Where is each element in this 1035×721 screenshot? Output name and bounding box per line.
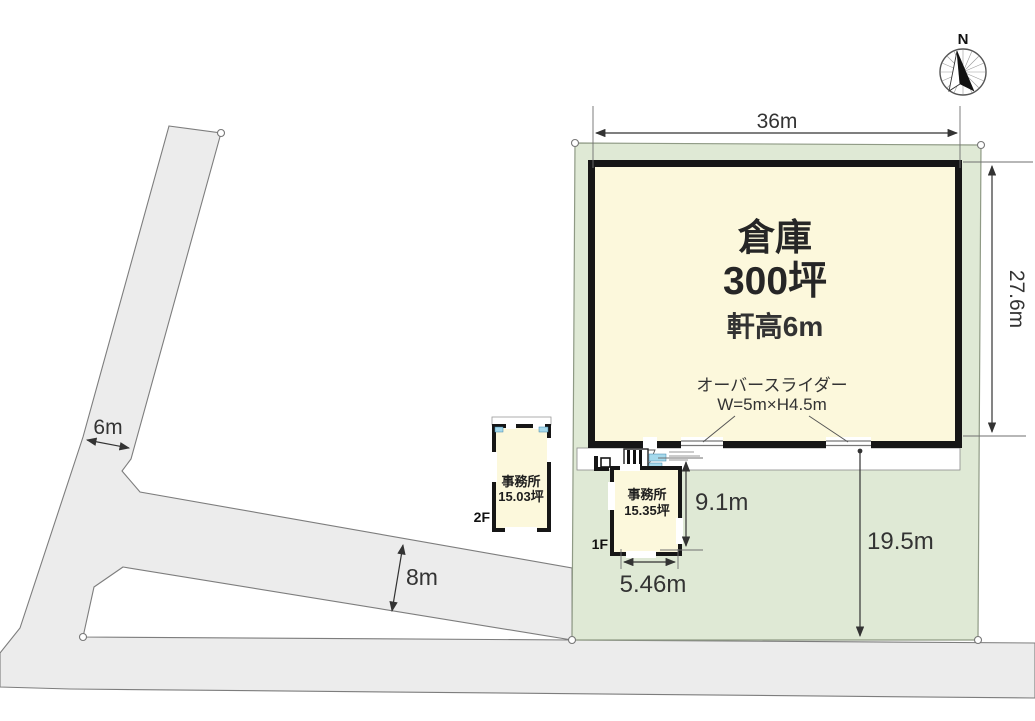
window-gap [490,452,497,482]
dock-box-icon [601,458,610,467]
dim-label-36m: 36m [757,110,798,133]
window-mark [539,427,548,432]
dim-label-27-6m: 27.6m [1005,270,1028,328]
slider-door-gap-2 [826,437,871,450]
office-2f-floor-label: 2F [474,509,491,525]
window-gap [620,464,640,471]
site-plan-canvas: 倉庫 300坪 軒高6m オーバースライダー W=5m×H4.5m 事務所 15… [0,0,1035,721]
office-2f-name: 事務所 [501,474,540,489]
warehouse-name: 倉庫 [737,217,812,258]
window-gap [505,527,537,534]
dim-label-6m: 6m [93,416,122,439]
window-mark [649,454,666,461]
compass-north-label: N [958,31,969,48]
slider-door-size: W=5m×H4.5m [717,395,827,414]
dim-label-5-46m: 5.46m [620,571,687,598]
window-gap [547,438,554,462]
warehouse-eave-height: 軒高6m [727,311,823,342]
window-gap [506,422,516,429]
dim-label-9-1m: 9.1m [695,489,748,516]
office-1f-name: 事務所 [627,487,666,502]
site-plan-drawing: 倉庫 300坪 軒高6m オーバースライダー W=5m×H4.5m 事務所 15… [0,0,1035,721]
office-1f-floor-label: 1F [592,536,609,552]
office-1f-area: 15.35坪 [624,503,670,518]
window-mark [495,427,503,432]
slider-door-label: オーバースライダー [696,376,847,395]
dim-label-19-5m: 19.5m [867,528,934,555]
warehouse-area: 300坪 [723,260,827,303]
window-gap [676,518,683,544]
office-2f-area: 15.03坪 [498,489,544,504]
window-gap [626,551,656,558]
dim-label-8m: 8m [406,564,438,590]
window-gap [608,482,615,510]
slider-door-gap-1 [681,437,723,450]
